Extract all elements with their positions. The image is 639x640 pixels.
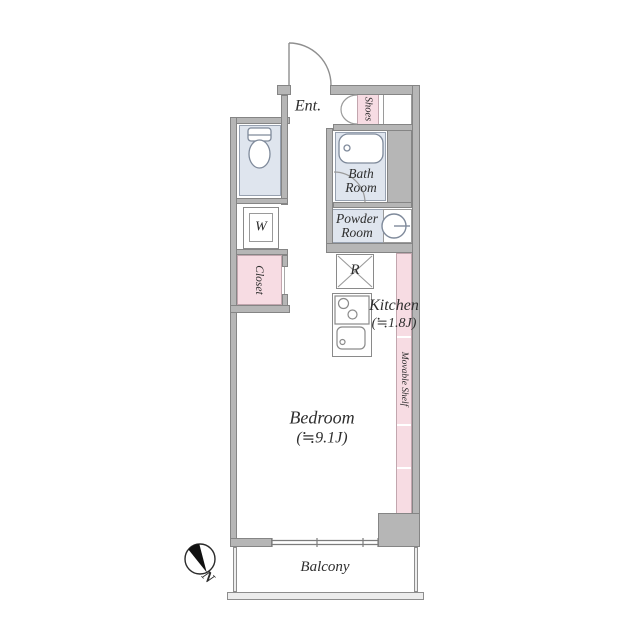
wall — [282, 255, 288, 267]
shoes-door-arcs — [341, 95, 357, 124]
refrigerator-label: R — [350, 263, 359, 279]
wall-shaft — [387, 130, 412, 203]
wall — [330, 85, 420, 95]
pillar — [378, 513, 420, 547]
powder-sink-counter — [383, 209, 412, 243]
bath-room-label: Bath Room — [345, 167, 377, 195]
bedroom-name: Bedroom — [289, 408, 354, 428]
entrance-door-arc — [289, 43, 331, 85]
window — [272, 538, 378, 547]
balcony-wall-right — [414, 547, 418, 592]
kitchen-label: Kitchen (≒1.8J) — [369, 298, 419, 332]
balcony-label: Balcony — [300, 560, 349, 576]
wall — [236, 249, 288, 255]
balcony-wall-left — [233, 547, 237, 592]
entrance-label: Ent. — [295, 99, 321, 116]
kitchen-size: (≒1.8J) — [372, 316, 417, 331]
wall — [281, 95, 288, 205]
wall — [277, 85, 291, 95]
wall — [230, 305, 290, 313]
shelf-divider — [397, 467, 411, 469]
closet-door-line — [284, 267, 285, 294]
wall — [236, 198, 288, 204]
north-label: N — [198, 569, 217, 588]
floor-plan: Ent. Shoes Bath Room Powder Room W Close… — [0, 0, 639, 640]
powder-label-line1: Powder — [336, 211, 378, 226]
shelf-divider — [397, 424, 411, 426]
wall — [326, 243, 420, 253]
bath-label-line2: Room — [345, 180, 377, 195]
shelf-divider — [397, 336, 411, 338]
bath-label-line1: Bath — [348, 166, 374, 181]
wall — [326, 128, 333, 253]
powder-room-label: Powder Room — [336, 212, 378, 240]
washer-label: W — [255, 221, 267, 236]
wall — [230, 538, 272, 547]
bedroom-label: Bedroom (≒9.1J) — [289, 409, 354, 448]
closet-label: Closet — [253, 265, 265, 294]
kitchen-name: Kitchen — [369, 297, 419, 314]
toilet-room — [239, 125, 281, 196]
meter-box — [383, 93, 412, 125]
movable-shelf-label: Movable Shelf — [399, 352, 409, 407]
powder-label-line2: Room — [341, 225, 373, 240]
shoes-label: Shoes — [363, 97, 374, 122]
kitchen-counter — [332, 293, 372, 357]
balcony-edge — [227, 592, 424, 600]
bedroom-size: (≒9.1J) — [296, 430, 347, 447]
wall — [230, 117, 237, 547]
